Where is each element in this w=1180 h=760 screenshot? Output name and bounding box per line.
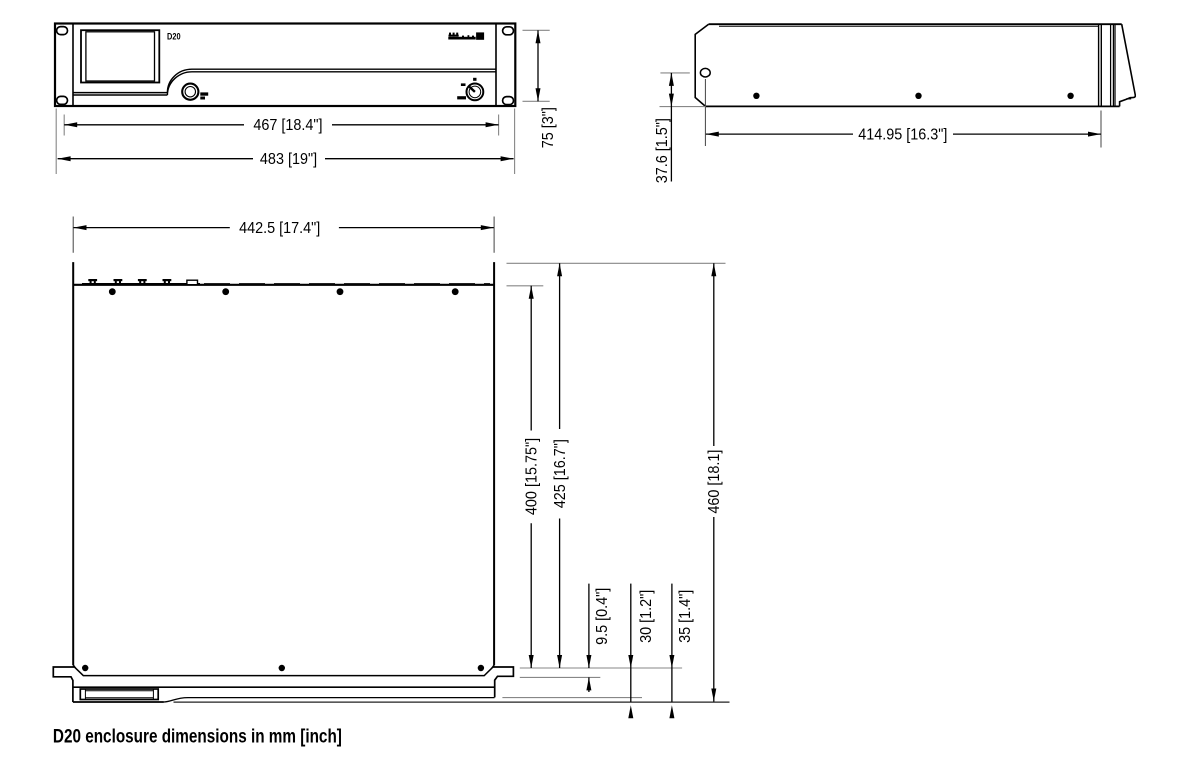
svg-text:D20 enclosure dimensions in mm: D20 enclosure dimensions in mm [inch] bbox=[53, 725, 342, 747]
svg-text:75 [3"]: 75 [3"] bbox=[539, 107, 557, 148]
svg-text:9.5 [0.4"]: 9.5 [0.4"] bbox=[594, 588, 612, 645]
svg-text:400 [15.75"]: 400 [15.75"] bbox=[523, 438, 541, 515]
svg-text:460 [18.1]: 460 [18.1] bbox=[706, 450, 724, 514]
svg-text:35 [1.4"]: 35 [1.4"] bbox=[676, 590, 694, 643]
svg-text:414.95 [16.3"]: 414.95 [16.3"] bbox=[858, 126, 947, 144]
svg-text:37.6 [1.5"]: 37.6 [1.5"] bbox=[653, 118, 671, 183]
svg-text:425 [16.7"]: 425 [16.7"] bbox=[551, 439, 569, 508]
svg-text:30 [1.2"]: 30 [1.2"] bbox=[637, 590, 655, 643]
svg-text:467 [18.4"]: 467 [18.4"] bbox=[253, 117, 322, 135]
svg-text:483 [19"]: 483 [19"] bbox=[260, 151, 317, 169]
svg-text:442.5 [17.4"]: 442.5 [17.4"] bbox=[239, 219, 320, 237]
svg-text:D20: D20 bbox=[167, 30, 181, 41]
